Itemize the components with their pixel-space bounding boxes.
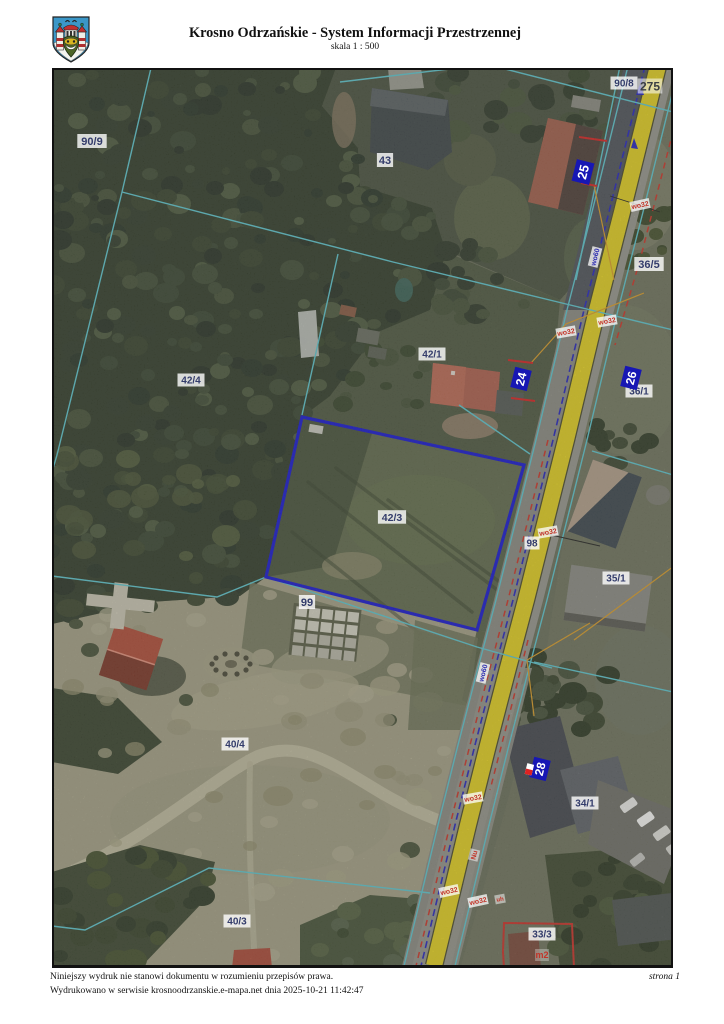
svg-text:33/3: 33/3 xyxy=(532,930,552,941)
svg-text:35/1: 35/1 xyxy=(606,574,626,585)
svg-text:99: 99 xyxy=(301,597,313,609)
svg-text:98: 98 xyxy=(526,539,538,550)
svg-text:42/1: 42/1 xyxy=(422,350,442,361)
svg-text:40/3: 40/3 xyxy=(227,917,247,928)
svg-text:m2: m2 xyxy=(535,950,548,960)
svg-text:40/4: 40/4 xyxy=(225,740,245,751)
svg-text:42/3: 42/3 xyxy=(382,512,403,524)
svg-text:275: 275 xyxy=(640,79,660,93)
svg-text:34/1: 34/1 xyxy=(575,799,595,810)
svg-text:43: 43 xyxy=(379,155,391,167)
svg-text:90/8: 90/8 xyxy=(614,79,634,90)
svg-text:42/4: 42/4 xyxy=(181,376,201,387)
svg-text:90/9: 90/9 xyxy=(81,136,102,148)
svg-text:36/5: 36/5 xyxy=(638,259,659,271)
